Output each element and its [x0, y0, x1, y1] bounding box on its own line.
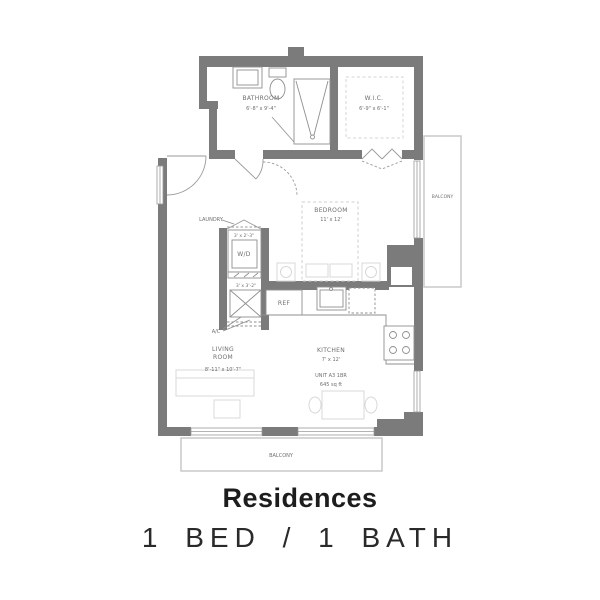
- unit-number: UNIT A3 1BR: [315, 373, 347, 379]
- bedroom-door-swing: [263, 162, 297, 196]
- wall-segment: [263, 150, 334, 159]
- wall-segment: [374, 427, 408, 436]
- living-room-label-line1: LIVING: [212, 346, 234, 353]
- floor-plan-drawing: BATHROOM 6'-8" x 9'-4" W.I.C. 6'-9" x 6'…: [0, 0, 600, 478]
- burner: [390, 332, 397, 339]
- shower-stall: [294, 79, 330, 144]
- wall-segment: [414, 56, 423, 160]
- bed-pillow: [306, 264, 328, 277]
- sofa: [176, 370, 254, 396]
- wic-dims: 6'-9" x 6'-1": [359, 106, 389, 112]
- dishwasher: [349, 288, 375, 313]
- bathroom-dims: 6'-8" x 9'-4": [246, 106, 276, 112]
- vanity-basin: [237, 70, 258, 85]
- living-room-dims: 8'-11" x 10'-7": [205, 367, 241, 373]
- nightstand: [362, 263, 380, 281]
- page: BATHROOM 6'-8" x 9'-4" W.I.C. 6'-9" x 6'…: [0, 0, 600, 600]
- coffee-table: [214, 400, 240, 418]
- wic-bifold-door: [362, 149, 382, 159]
- wall-segment: [163, 427, 191, 436]
- wall-segment: [262, 427, 298, 436]
- burner: [403, 347, 410, 354]
- caption-subtitle: 1 BED / 1 BATH: [142, 522, 458, 554]
- laundry-leader-line: [222, 220, 234, 224]
- floor-plan: BATHROOM 6'-8" x 9'-4" W.I.C. 6'-9" x 6'…: [0, 0, 600, 478]
- wall-segment: [414, 287, 423, 371]
- burner: [390, 347, 397, 354]
- balcony-bottom-label: BALCONY: [269, 453, 294, 459]
- bedroom-dims: 11' x 12': [320, 217, 342, 223]
- kitchen-dims: 7' x 12': [322, 357, 340, 363]
- ac-label: A/C: [212, 329, 221, 335]
- wall-segment: [219, 228, 227, 330]
- nightstand: [277, 263, 295, 281]
- wall-segment: [334, 150, 362, 159]
- wall-segment: [288, 47, 304, 57]
- column-notch: [391, 267, 412, 285]
- ac-dims: 3' x 3'-2": [236, 283, 256, 289]
- nightstand-lamp: [366, 267, 377, 278]
- laundry-dims: 3' x 2'-3": [234, 233, 254, 239]
- dining-chair: [309, 397, 321, 413]
- shower-drain: [311, 135, 315, 139]
- bed-pillow: [330, 264, 352, 277]
- wall-segment: [330, 67, 338, 159]
- bathroom-door-leaf: [235, 159, 256, 179]
- bathroom-door-swing: [256, 159, 263, 179]
- dining-chair: [365, 397, 377, 413]
- laundry-bifold-door: [227, 220, 261, 229]
- kitchen-faucet: [330, 288, 333, 291]
- caption-title: Residences: [222, 482, 377, 514]
- wic-bifold-door: [382, 149, 402, 159]
- doors: [167, 117, 402, 229]
- bathroom-label: BATHROOM: [242, 95, 279, 102]
- wall-segment: [209, 150, 235, 159]
- dining-table: [322, 391, 364, 419]
- balcony-right-label: BALCONY: [432, 194, 454, 200]
- wic-bifold-door-swing: [362, 161, 402, 169]
- refrigerator-label: REF: [278, 300, 291, 307]
- living-room-label-line2: ROOM: [213, 354, 233, 361]
- shower-door-leaf: [272, 117, 294, 142]
- nightstand-lamp: [281, 267, 292, 278]
- wic-label: W.I.C.: [365, 95, 384, 102]
- toilet-tank: [269, 68, 286, 77]
- washer-dryer-label: W/D: [237, 251, 251, 258]
- kitchen-label: KITCHEN: [317, 347, 345, 354]
- stove: [384, 326, 414, 360]
- kitchen-sink-basin: [320, 290, 343, 307]
- laundry-label: LAUNDRY: [199, 217, 224, 223]
- bedroom-label: BEDROOM: [314, 207, 347, 214]
- unit-area: 645 sq ft: [320, 382, 342, 388]
- balcony-right-outline: [424, 136, 461, 287]
- wall-segment: [199, 56, 423, 67]
- entry-door-swing: [167, 156, 206, 195]
- burner: [403, 332, 410, 339]
